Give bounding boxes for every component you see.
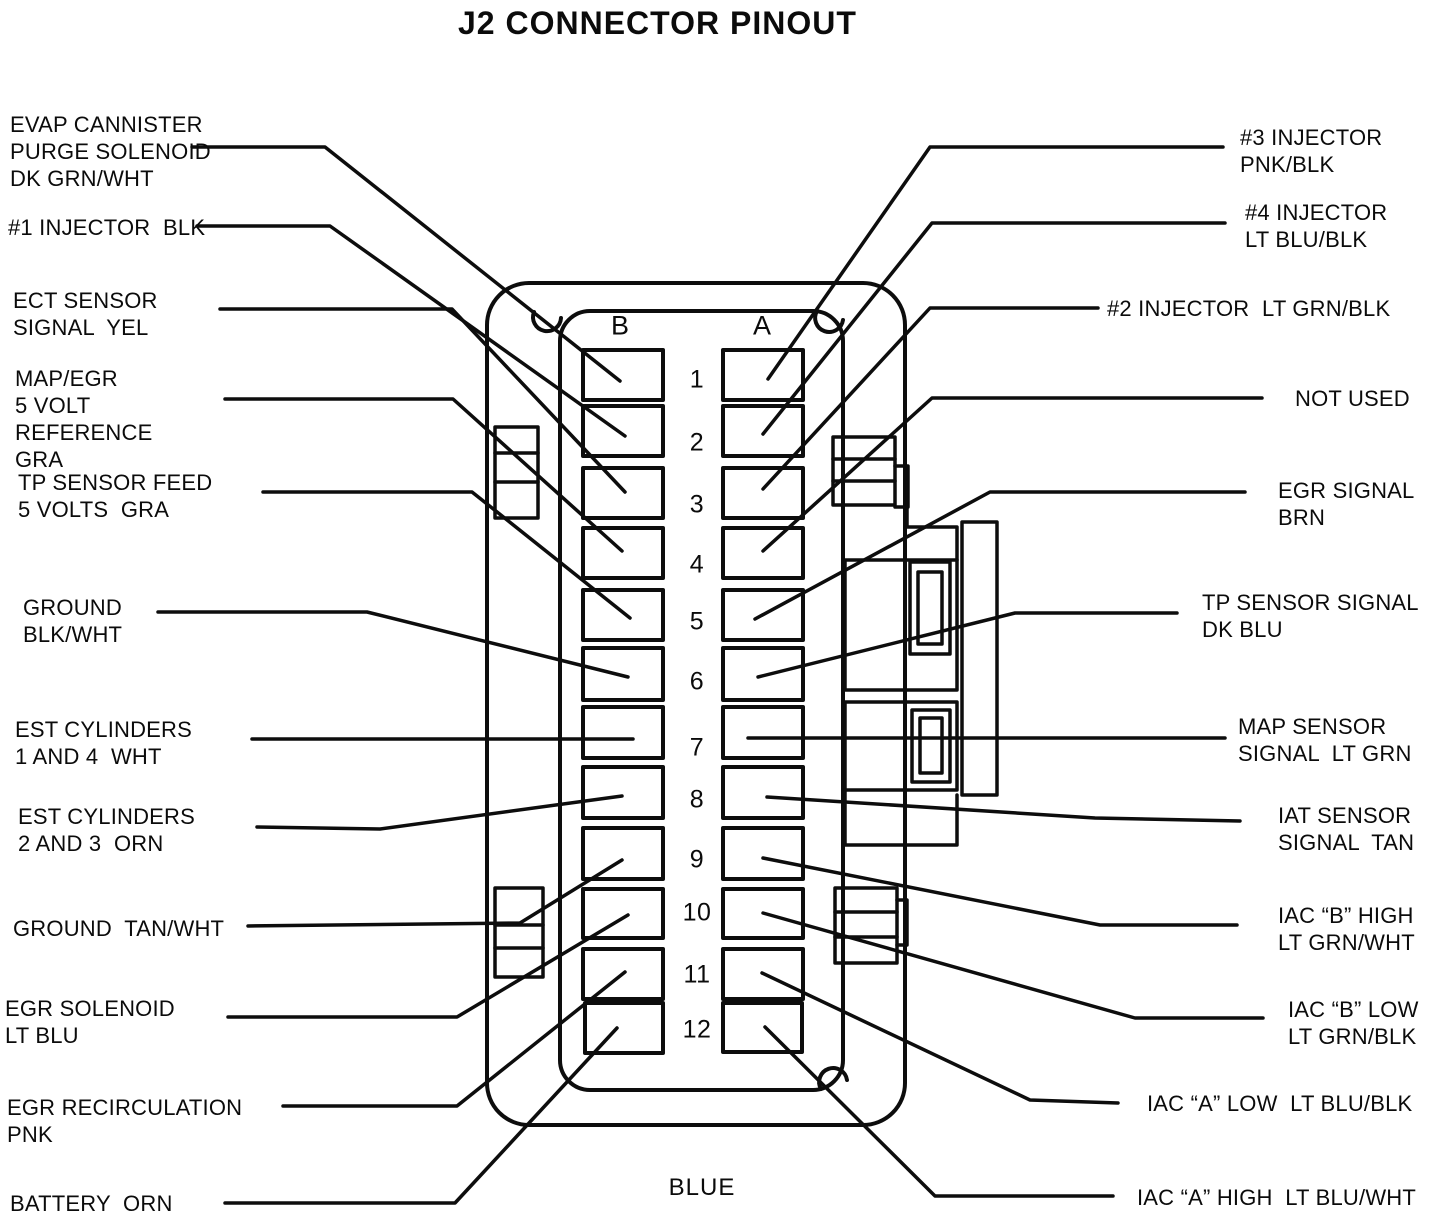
pin-box-b3 xyxy=(583,468,663,518)
pin-boxes-column-a xyxy=(723,350,803,1052)
latch-lower-block xyxy=(845,702,957,790)
pin-number-9: 9 xyxy=(690,846,704,875)
leader-b8 xyxy=(257,796,622,829)
label-ground-blk-wht: GROUNDBLK/WHT xyxy=(23,594,122,648)
leader-a8 xyxy=(767,797,1240,821)
leader-a2 xyxy=(763,223,1225,434)
label-injector-3: #3 INJECTORPNK/BLK xyxy=(1240,124,1382,178)
pin-number-7: 7 xyxy=(690,734,704,763)
j2-connector-pinout-diagram: J2 CONNECTOR PINOUT B A 1 2 3 4 5 6 7 8 … xyxy=(0,0,1456,1218)
leader-a5 xyxy=(755,492,1245,619)
pin-box-b5 xyxy=(583,590,663,640)
label-iac-b-low: IAC “B” LOWLT GRN/BLK xyxy=(1288,996,1419,1050)
pin-box-b12 xyxy=(585,1003,663,1053)
pin-box-a3 xyxy=(723,468,803,518)
column-a-label: A xyxy=(753,311,771,342)
leader-a11 xyxy=(762,973,1118,1103)
leader-a10 xyxy=(763,913,1263,1018)
pin-box-b9 xyxy=(583,828,663,879)
leader-b6 xyxy=(158,612,628,677)
pin-number-3: 3 xyxy=(690,491,704,520)
label-not-used: NOT USED xyxy=(1295,385,1410,412)
pin-box-b4 xyxy=(583,528,663,578)
pin-box-a1 xyxy=(723,350,803,400)
label-ect-sensor-signal: ECT SENSORSIGNAL YEL xyxy=(13,287,158,341)
label-map-egr-5v-reference: MAP/EGR5 VOLTREFERENCEGRA xyxy=(15,365,153,473)
connector-body xyxy=(487,283,905,1125)
pin-box-a4 xyxy=(723,528,803,578)
latch-step-lower xyxy=(845,790,957,845)
pin-box-b7 xyxy=(583,707,663,758)
pin-box-a9 xyxy=(723,828,803,879)
pin-box-a8 xyxy=(723,767,803,818)
right-side-latch xyxy=(833,437,997,963)
label-egr-signal: EGR SIGNALBRN xyxy=(1278,477,1414,531)
pin-number-8: 8 xyxy=(690,786,704,815)
label-tp-sensor-feed: TP SENSOR FEED5 VOLTS GRA xyxy=(18,469,212,523)
latch-upper-block xyxy=(845,560,957,690)
label-tp-sensor-signal: TP SENSOR SIGNALDK BLU xyxy=(1202,589,1419,643)
column-b-label: B xyxy=(611,311,629,342)
pin-boxes-column-b xyxy=(583,350,663,1053)
pin-box-a2 xyxy=(723,406,803,456)
label-iac-b-high: IAC “B” HIGHLT GRN/WHT xyxy=(1278,902,1415,956)
connector-color-label: BLUE xyxy=(669,1174,736,1202)
pin-number-1: 1 xyxy=(690,366,704,395)
leader-b4 xyxy=(225,399,622,551)
pin-number-4: 4 xyxy=(690,551,704,580)
label-iat-sensor-signal: IAT SENSORSIGNAL TAN xyxy=(1278,802,1414,856)
pin-number-2: 2 xyxy=(690,429,704,458)
pin-number-10: 10 xyxy=(683,899,712,928)
pin-number-5: 5 xyxy=(690,608,704,637)
pin-number-6: 6 xyxy=(690,668,704,697)
leader-b10 xyxy=(228,915,628,1017)
label-ground-tan-wht: GROUND TAN/WHT xyxy=(13,915,224,942)
label-map-sensor-signal: MAP SENSORSIGNAL LT GRN xyxy=(1238,713,1412,767)
label-injector-2: #2 INJECTOR LT GRN/BLK xyxy=(1107,295,1390,322)
label-egr-recirculation: EGR RECIRCULATIONPNK xyxy=(7,1094,242,1148)
pin-box-a12 xyxy=(723,1003,802,1052)
leader-b1 xyxy=(192,147,620,381)
tab-bottom-left xyxy=(495,888,543,977)
pin-box-a7 xyxy=(723,707,803,758)
latch-lower-slot-inner xyxy=(920,718,942,773)
diagram-title: J2 CONNECTOR PINOUT xyxy=(458,5,857,42)
leader-b9 xyxy=(248,860,622,926)
left-side-tabs xyxy=(495,427,543,977)
pin-box-b1 xyxy=(583,350,663,400)
pin-box-b10 xyxy=(583,889,663,938)
leader-a4 xyxy=(763,398,1262,551)
label-egr-solenoid: EGR SOLENOIDLT BLU xyxy=(5,995,175,1049)
latch-upper-slot-outer xyxy=(910,562,950,654)
latch-lower-slot-outer xyxy=(912,710,950,782)
latch-step-upper xyxy=(907,482,957,560)
label-iac-a-high: IAC “A” HIGH LT BLU/WHT xyxy=(1137,1184,1416,1211)
label-evap-cannister-purge-solenoid: EVAP CANNISTERPURGE SOLENOIDDK GRN/WHT xyxy=(10,111,211,192)
latch-right-tab xyxy=(962,522,997,795)
label-battery: BATTERY ORN xyxy=(10,1190,173,1217)
pin-number-11: 11 xyxy=(684,961,711,990)
label-injector-4: #4 INJECTORLT BLU/BLK xyxy=(1245,199,1387,253)
leader-a12 xyxy=(765,1027,1113,1196)
label-injector-1: #1 INJECTOR BLK xyxy=(8,214,205,241)
pin-number-12: 12 xyxy=(683,1016,712,1045)
leader-a6 xyxy=(758,613,1177,677)
pin-box-b8 xyxy=(583,767,663,818)
label-est-cylinders-2-3: EST CYLINDERS2 AND 3 ORN xyxy=(18,803,195,857)
label-est-cylinders-1-4: EST CYLINDERS1 AND 4 WHT xyxy=(15,716,192,770)
label-iac-a-low: IAC “A” LOW LT BLU/BLK xyxy=(1147,1090,1412,1117)
